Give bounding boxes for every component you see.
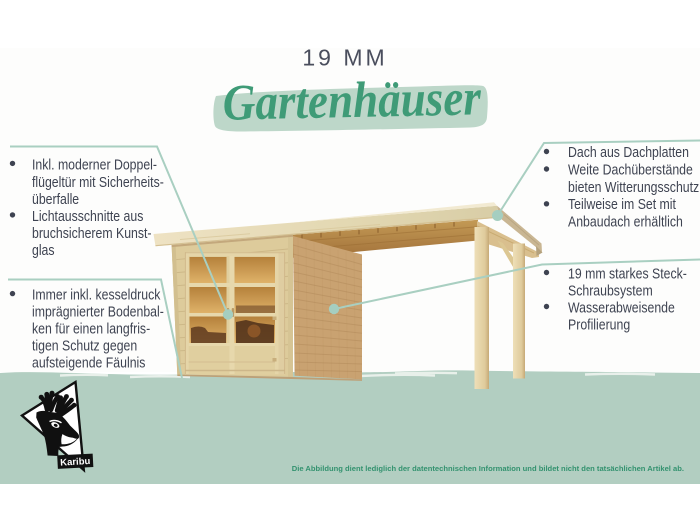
svg-text:19 mm starkes Steck-: 19 mm starkes Steck- [568, 266, 687, 282]
svg-text:Schraubsystem: Schraubsystem [568, 283, 653, 299]
svg-text:Lichtausschnitte aus: Lichtausschnitte aus [32, 208, 144, 224]
svg-text:Anbaudach erhältlich: Anbaudach erhältlich [568, 214, 683, 230]
svg-text:Weite Dachüberstände: Weite Dachüberstände [568, 162, 693, 178]
svg-text:Profilierung: Profilierung [568, 317, 630, 333]
svg-text:bieten Witterungsschutz: bieten Witterungsschutz [568, 179, 699, 195]
svg-text:Teilweise im Set mit: Teilweise im Set mit [568, 196, 676, 212]
svg-text:ken für einen langfris-: ken für einen langfris- [32, 321, 150, 337]
svg-text:aufsteigende Fäulnis: aufsteigende Fäulnis [32, 355, 146, 371]
svg-text:Die Abbildung dient lediglich: Die Abbildung dient lediglich der datent… [292, 464, 684, 473]
svg-text:bruchsicherem Kunst-: bruchsicherem Kunst- [32, 225, 152, 241]
svg-text:Gartenhäuser: Gartenhäuser [222, 70, 482, 131]
svg-text:Immer inkl. kesseldruck: Immer inkl. kesseldruck [32, 287, 161, 303]
svg-text:Dach aus Dachplatten: Dach aus Dachplatten [568, 144, 689, 160]
svg-text:flügeltür mit Sicherheits-: flügeltür mit Sicherheits- [32, 174, 164, 190]
svg-text:überfalle: überfalle [32, 191, 79, 207]
svg-text:glas: glas [32, 242, 55, 258]
svg-text:Inkl. moderner Doppel-: Inkl. moderner Doppel- [32, 157, 157, 173]
svg-text:imprägnierter Bodenbal-: imprägnierter Bodenbal- [32, 304, 164, 320]
svg-text:Karibu: Karibu [60, 456, 91, 469]
svg-text:19 MM: 19 MM [302, 45, 387, 71]
svg-text:Wasserabweisende: Wasserabweisende [568, 300, 675, 316]
svg-text:tigen Schutz gegen: tigen Schutz gegen [32, 338, 137, 354]
